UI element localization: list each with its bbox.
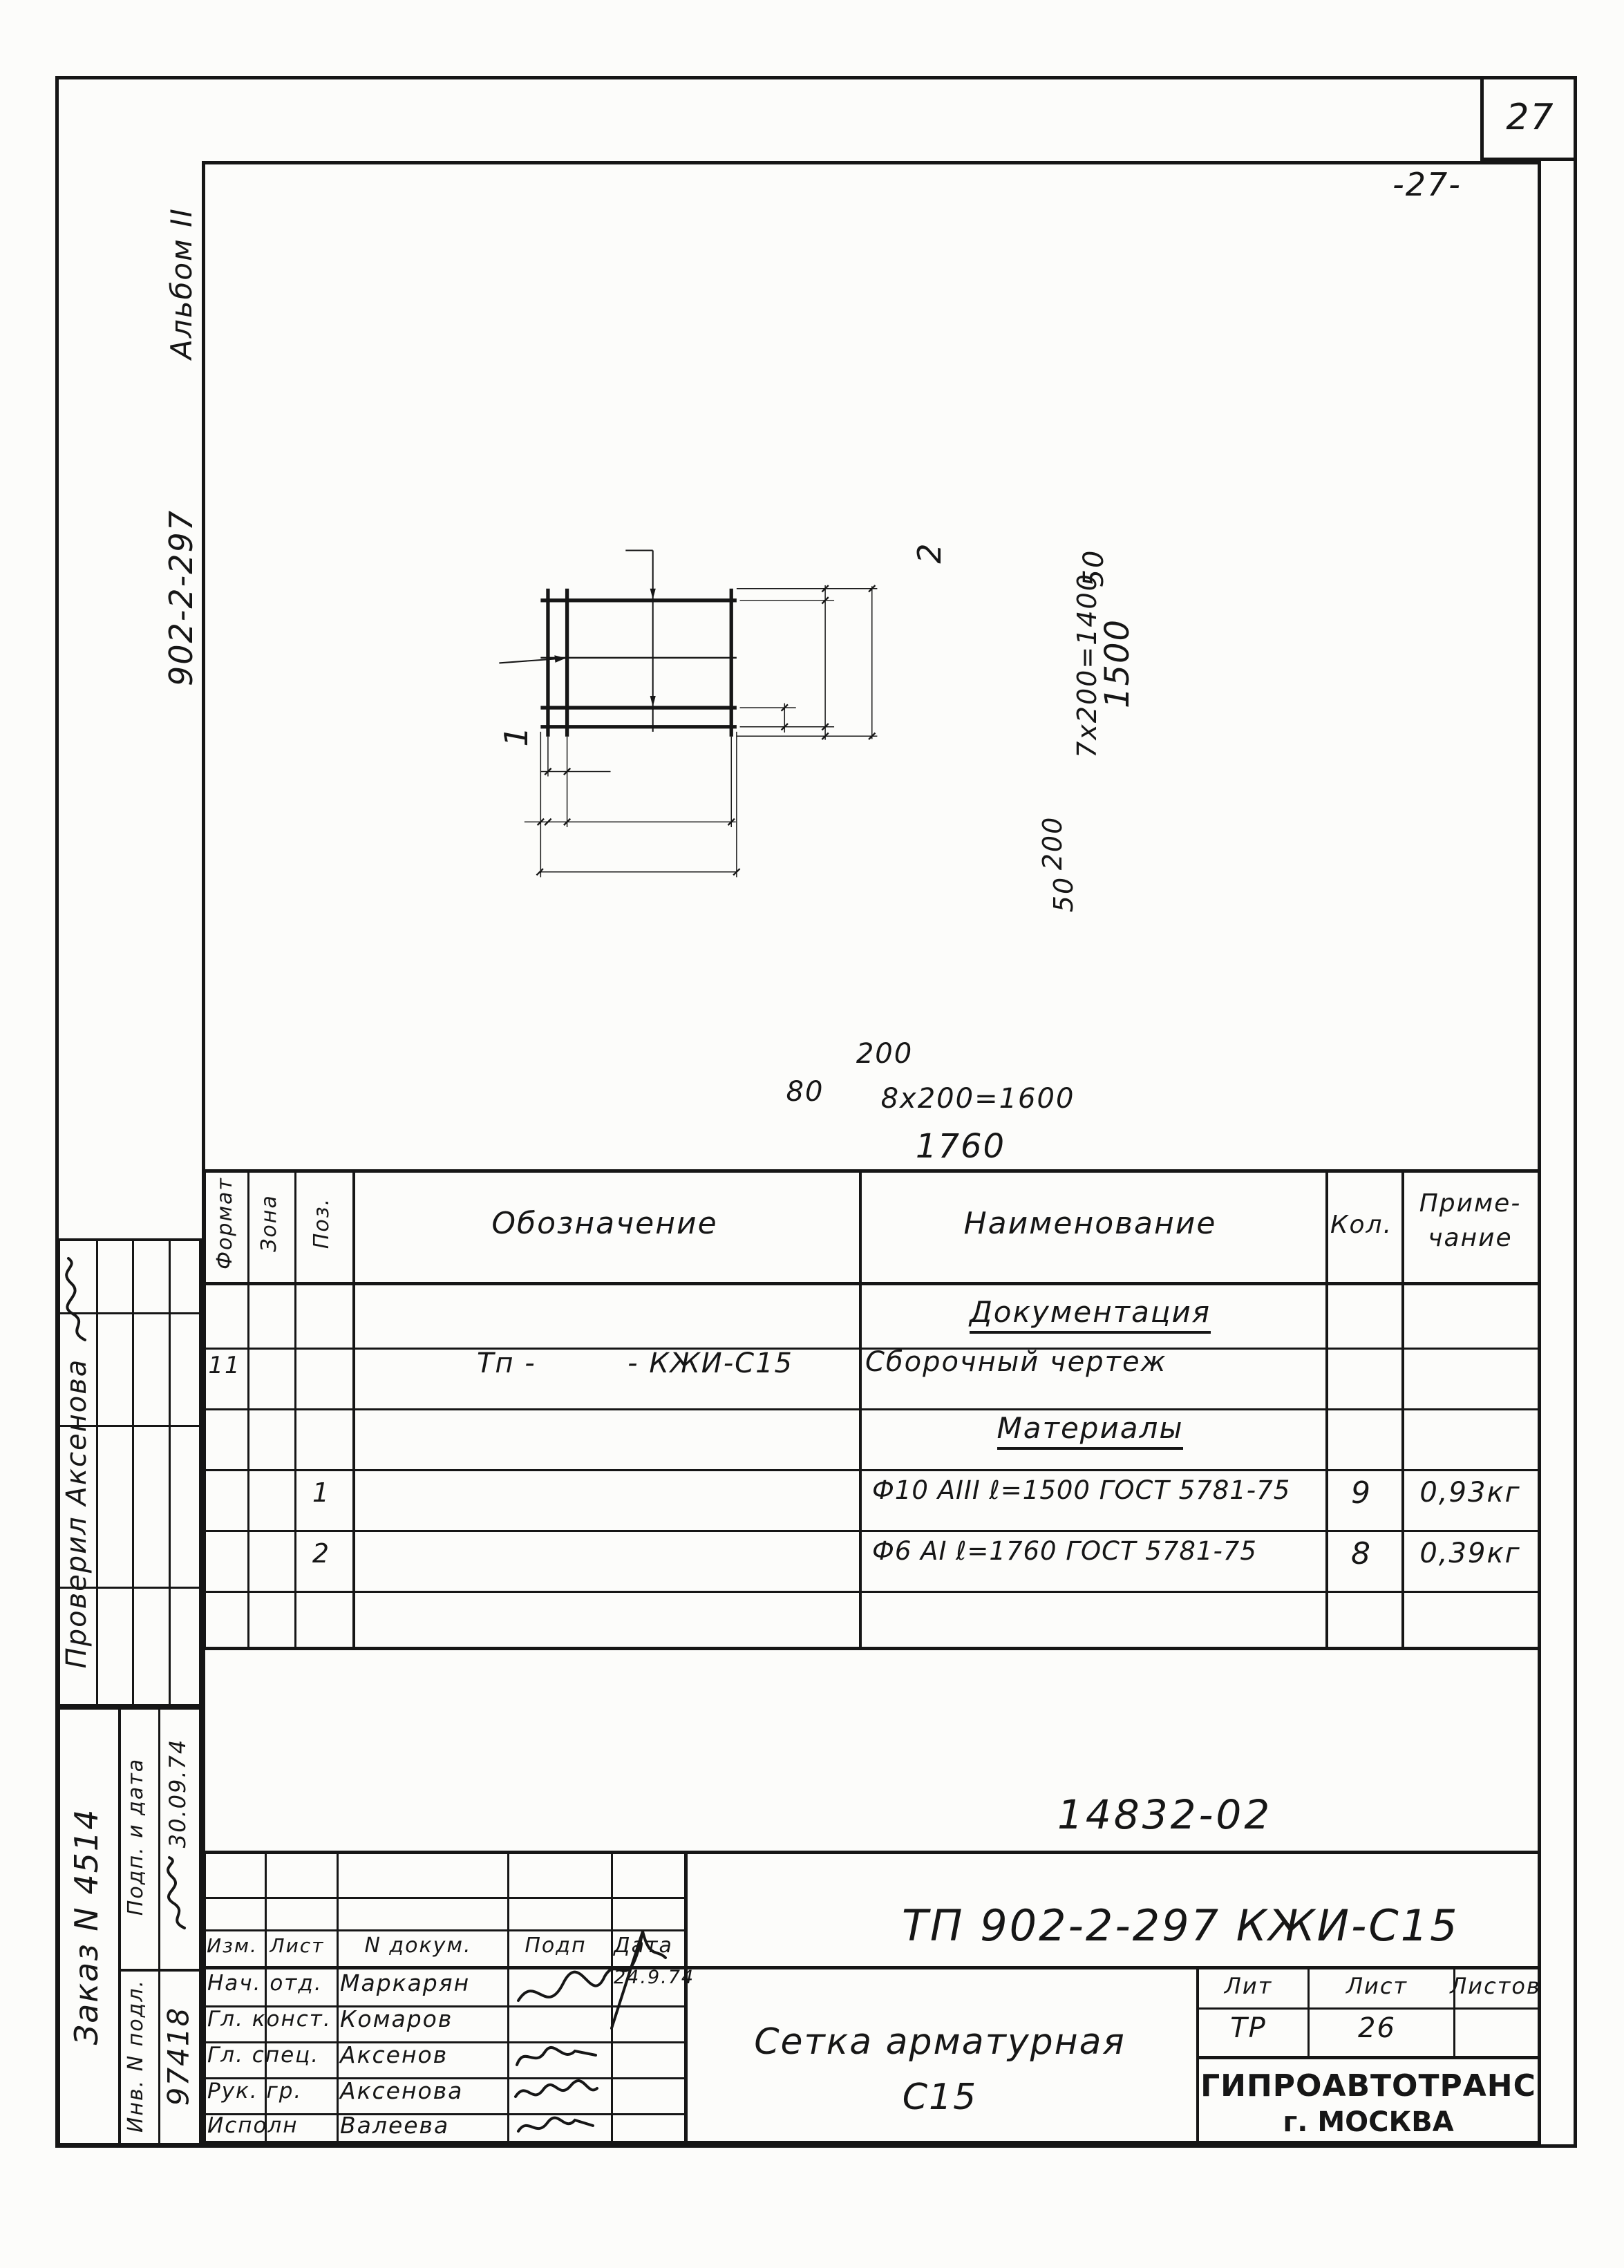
dim-edge-left: 80 [774,1075,836,1109]
role-4-label: Исполн [207,2113,299,2138]
listov-header: Листов [1450,1968,1541,2004]
role-1-name: Комаров [340,2005,453,2032]
mesh-bars [540,589,737,737]
bom-row4-note: 0,39кг [1399,1531,1541,1576]
bom-row4-pos: 2 [294,1534,349,1573]
bom-header-note-line1: Приме- [1399,1186,1541,1220]
dim-edge-bottom: 50 [1048,863,1079,925]
bom-header-pos: Поз. [308,1175,335,1272]
bom-row3-qty: 9 [1323,1471,1399,1515]
rev-header-izm: Изм. [204,1929,261,1961]
extension-lines [540,589,877,878]
bom-header-designation: Обозначение [352,1202,857,1244]
dim-row-bottom: 8х200=1600 [860,1081,1095,1116]
bar-callout-2: 2 [912,532,947,574]
sheet-value: 26 [1304,2007,1450,2049]
page-number-center: -27- [1365,164,1489,205]
dim-height-total: 1500 [1100,591,1135,736]
bom-row3-note: 0,93кг [1399,1471,1541,1515]
role-1-label: Гл. конст. [207,2007,332,2032]
dim-width-total: 1760 [891,1128,1030,1165]
role-3-name: Аксенова [340,2077,463,2104]
role-0-name: Маркарян [340,1969,470,1996]
sheets-value [1450,2007,1541,2049]
bom-header-format: Формат [211,1171,238,1275]
bom-row1-name: Сборочный чертеж [865,1346,1167,1378]
sheet-number-box: 27 [1480,77,1577,161]
album-label: Альбом II [164,180,198,387]
titleblock-designation: ТП 902-2-297 КЖИ-С15 [902,1900,1460,1951]
callout-lines [499,550,652,731]
doc-number: 14832-02 [1057,1791,1272,1838]
lit-value: ТР [1193,2007,1304,2049]
checked-signature-icon [62,1254,92,1344]
inventory-value: 97418 [160,1970,198,2143]
organization-name: ГИПРОАВТОТРАНС [1196,2066,1541,2105]
bom-row4-name: Ф6 АI ℓ=1760 ГОСТ 5781-75 [872,1536,1257,1566]
role-2-label: Гл. спец. [207,2043,319,2068]
organization-city: г. МОСКВА [1196,2105,1541,2139]
checked-label: Проверил Аксенова [60,1320,93,1707]
sign-date-label: Подп. и дата [122,1719,149,1954]
callout-arrows [554,589,655,707]
bom-row1-format: 11 [202,1346,247,1385]
bom-header-zone: Зона [255,1175,283,1272]
date-signature-icon [164,1855,191,1931]
bom-row-documentation: Документация [857,1294,1323,1335]
bom-row4-qty: 8 [1323,1531,1399,1576]
lit-header: Лит [1193,1968,1304,2004]
titleblock-title-line2: С15 [684,2073,1196,2121]
drawing-sheet: 27 -27- Альбом II 902-2-297 Проверил Акс… [0,0,1624,2268]
bom-row3-name: Ф10 АIII ℓ=1500 ГОСТ 5781-75 [872,1475,1290,1505]
bom-row3-pos: 1 [294,1473,349,1512]
role-2-name: Аксенов [340,2041,448,2068]
role-4-name: Валеева [340,2112,449,2139]
bom-header-name: Наименование [857,1202,1323,1244]
bar-callout-1: 1 [499,715,534,757]
rev-header-doc: N докум. [335,1929,501,1961]
inventory-label: Инв. N подл. [122,1969,149,2142]
signature-group-icon [511,2076,601,2106]
role-0-label: Нач. отд. [207,1971,323,1996]
sign-date-value: 30.09.74 [157,1717,198,1952]
signature-exec-icon [514,2112,597,2139]
project-code-label: 902-2-297 [163,480,199,715]
order-number-label: Заказ N 4514 [69,1733,104,2120]
list-header: Лист [1304,1968,1450,2004]
signature-spec-icon [511,2040,601,2070]
bom-row-materials: Материалы [857,1410,1323,1451]
bom-header-note-line2: чание [1399,1220,1541,1255]
titleblock-title-line1: Сетка арматурная [684,2018,1196,2066]
dim-spacing-first: 200 [840,1037,929,1071]
signature-chief-icon [508,1918,670,2035]
bom-row1-designation: Тп - - КЖИ-С15 [477,1348,793,1379]
role-3-label: Рук. гр. [207,2079,302,2104]
bom-header-qty: Кол. [1323,1205,1399,1244]
dimension-ticks [536,585,875,875]
rev-header-list: Лист [263,1929,332,1961]
